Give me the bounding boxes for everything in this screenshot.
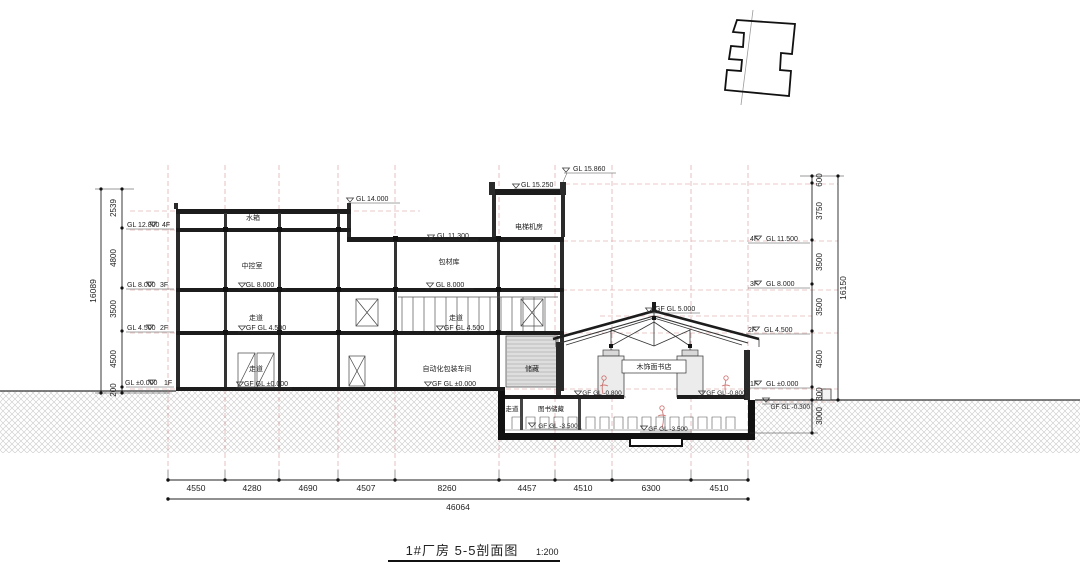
room-label: 走道 bbox=[449, 313, 463, 322]
dim-value: 200 bbox=[109, 383, 118, 397]
level-label: GF GL 5.000 bbox=[655, 306, 695, 313]
dim-value: 4280 bbox=[243, 483, 262, 493]
level-label: GF GL 4.500 bbox=[444, 325, 484, 332]
room-label: 图书储藏 bbox=[538, 404, 565, 413]
key-plan bbox=[725, 10, 795, 105]
dim-value: 3500 bbox=[815, 298, 824, 316]
floor-tag: 2F bbox=[748, 327, 756, 334]
dim-value: 8260 bbox=[438, 483, 457, 493]
level-label: GL 8.000 bbox=[766, 281, 795, 288]
dim-value: 4500 bbox=[109, 350, 118, 368]
dim-value: 4457 bbox=[518, 483, 537, 493]
dim-value: 3000 bbox=[815, 407, 824, 425]
floor-tag: 3F bbox=[160, 282, 168, 289]
dim-value: 4510 bbox=[574, 483, 593, 493]
level-label: GF GL -3.500 bbox=[648, 426, 688, 433]
room-label: 木饰面书店 bbox=[637, 362, 672, 371]
dim-total: 16089 bbox=[88, 279, 98, 303]
level-label: GL 15.860 bbox=[573, 166, 606, 173]
level-label: GF GL -0.800 bbox=[706, 390, 746, 397]
section-drawing-sheet: 4550 4280 4690 4507 8260 4457 4510 6300 … bbox=[0, 0, 1080, 578]
roof-truss bbox=[556, 311, 759, 356]
level-label: GF GL -3.500 bbox=[538, 423, 578, 430]
level-label: GF GL -0.300 bbox=[771, 404, 811, 411]
floor-tag: 4F bbox=[750, 236, 758, 243]
dim-value: 4690 bbox=[299, 483, 318, 493]
level-label: GF GL 4.500 bbox=[246, 325, 286, 332]
slab-3f bbox=[176, 288, 564, 292]
section-cut-line bbox=[741, 10, 753, 105]
floor-tag: 4F bbox=[162, 222, 170, 229]
level-label: GF GL -0.800 bbox=[582, 390, 622, 397]
floor-tag: 1F bbox=[164, 380, 172, 387]
level-label: GL 8.000 bbox=[246, 282, 275, 289]
dim-value: 2539 bbox=[109, 199, 118, 217]
room-label: 包材库 bbox=[439, 257, 460, 266]
room-label: 储藏 bbox=[525, 364, 539, 373]
level-label: GL 8.000 bbox=[436, 282, 465, 289]
floor-tag: 1F bbox=[750, 381, 758, 388]
basement-pit bbox=[498, 391, 755, 446]
dim-chain-right: 600 3750 3500 3500 4500 300 3000 16150 bbox=[750, 173, 848, 435]
dim-total: 16150 bbox=[838, 276, 848, 300]
room-label: 走道 bbox=[249, 313, 263, 322]
level-label: GL 4.500 bbox=[127, 325, 156, 332]
room-label: 自动化包装车间 bbox=[423, 364, 472, 373]
dim-value: 300 bbox=[815, 387, 824, 401]
room-label: 水箱 bbox=[246, 213, 260, 222]
dim-value: 600 bbox=[815, 173, 824, 187]
level-label: GL 15.250 bbox=[521, 182, 554, 189]
level-label: GF GL ±0.000 bbox=[244, 381, 288, 388]
dim-value: 4500 bbox=[815, 350, 824, 368]
section-drawing: 4550 4280 4690 4507 8260 4457 4510 6300 … bbox=[0, 0, 1080, 578]
slab-4f bbox=[176, 228, 351, 232]
room-label: 中控室 bbox=[242, 261, 263, 270]
level-label: GL 14.000 bbox=[356, 196, 389, 203]
room-label: 走道 bbox=[249, 364, 263, 373]
roof-top-chord bbox=[553, 311, 759, 339]
dim-value: 6300 bbox=[642, 483, 661, 493]
storage-shaft bbox=[506, 336, 558, 387]
floor-tag: 3F bbox=[750, 281, 758, 288]
level-label: GL 11.300 bbox=[437, 233, 469, 240]
slab-2f bbox=[176, 331, 564, 335]
roof-slab-gl14 bbox=[176, 209, 351, 214]
drawing-title: 1#厂房 5-5剖面图 bbox=[406, 543, 519, 558]
dim-value: 4800 bbox=[109, 249, 118, 267]
level-label: GL 12.800 bbox=[127, 222, 160, 229]
factory-building bbox=[174, 182, 566, 391]
dim-value: 4550 bbox=[187, 483, 206, 493]
key-plan-footprint bbox=[725, 20, 795, 96]
dim-chain-left: 2539 4800 3500 4500 200 16089 bbox=[88, 187, 170, 396]
level-label: GL 4.500 bbox=[764, 327, 793, 334]
dim-value: 3500 bbox=[109, 300, 118, 318]
dim-chain-bottom: 4550 4280 4690 4507 8260 4457 4510 6300 … bbox=[166, 470, 749, 512]
level-label: GL 11.500 bbox=[766, 236, 798, 243]
level-label: GL ±0.000 bbox=[766, 381, 798, 388]
room-label: 电梯机房 bbox=[515, 222, 543, 231]
dim-value: 4510 bbox=[710, 483, 729, 493]
room-label: 走道 bbox=[506, 404, 520, 413]
pit-sump bbox=[630, 438, 682, 446]
level-label: GL ±0.000 bbox=[125, 380, 157, 387]
drawing-scale: 1:200 bbox=[536, 547, 559, 557]
dim-value: 4507 bbox=[357, 483, 376, 493]
level-label: GF GL ±0.000 bbox=[432, 381, 476, 388]
dim-value: 3750 bbox=[815, 202, 824, 220]
floor-tag: 2F bbox=[160, 325, 168, 332]
title-block: 1#厂房 5-5剖面图 1:200 bbox=[388, 543, 560, 561]
dim-value: 3500 bbox=[815, 253, 824, 271]
level-label: GL 8.000 bbox=[127, 282, 156, 289]
dim-total: 46064 bbox=[446, 502, 470, 512]
